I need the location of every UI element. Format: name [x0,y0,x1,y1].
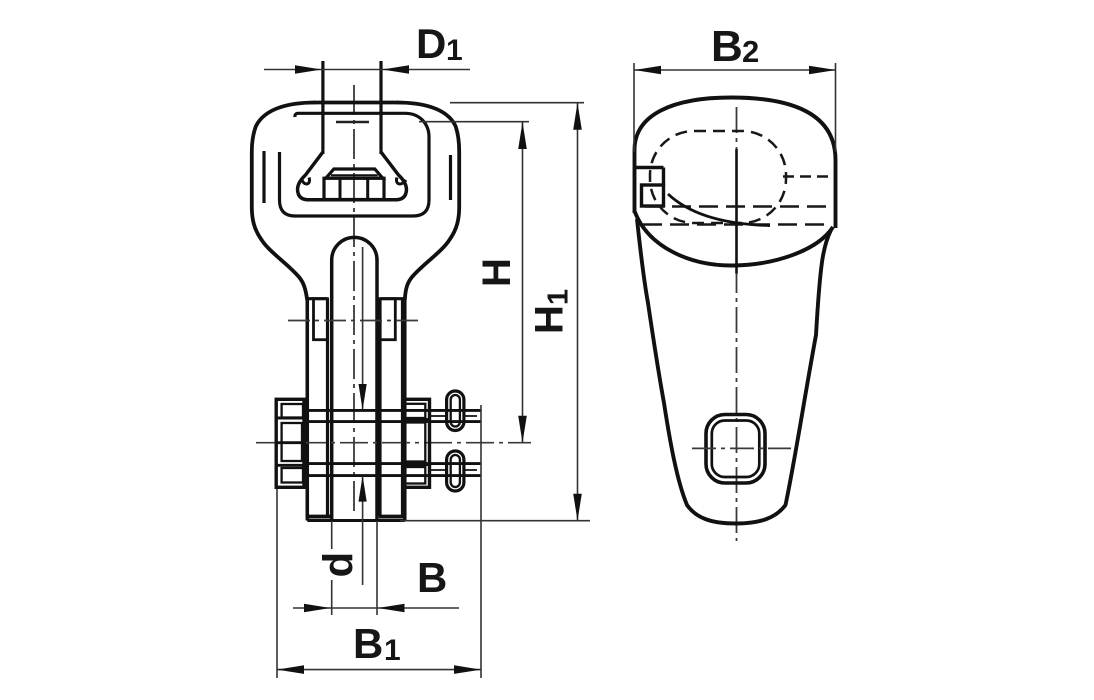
svg-text:d: d [315,552,362,578]
svg-text:2: 2 [742,34,759,69]
svg-text:1: 1 [446,34,463,67]
svg-text:B: B [353,620,383,667]
svg-text:H1: H1 [528,289,575,334]
svg-text:D: D [416,20,446,67]
svg-text:B: B [417,554,447,601]
svg-text:1: 1 [384,634,401,667]
svg-text:B: B [711,22,743,71]
svg-text:H: H [475,258,519,287]
